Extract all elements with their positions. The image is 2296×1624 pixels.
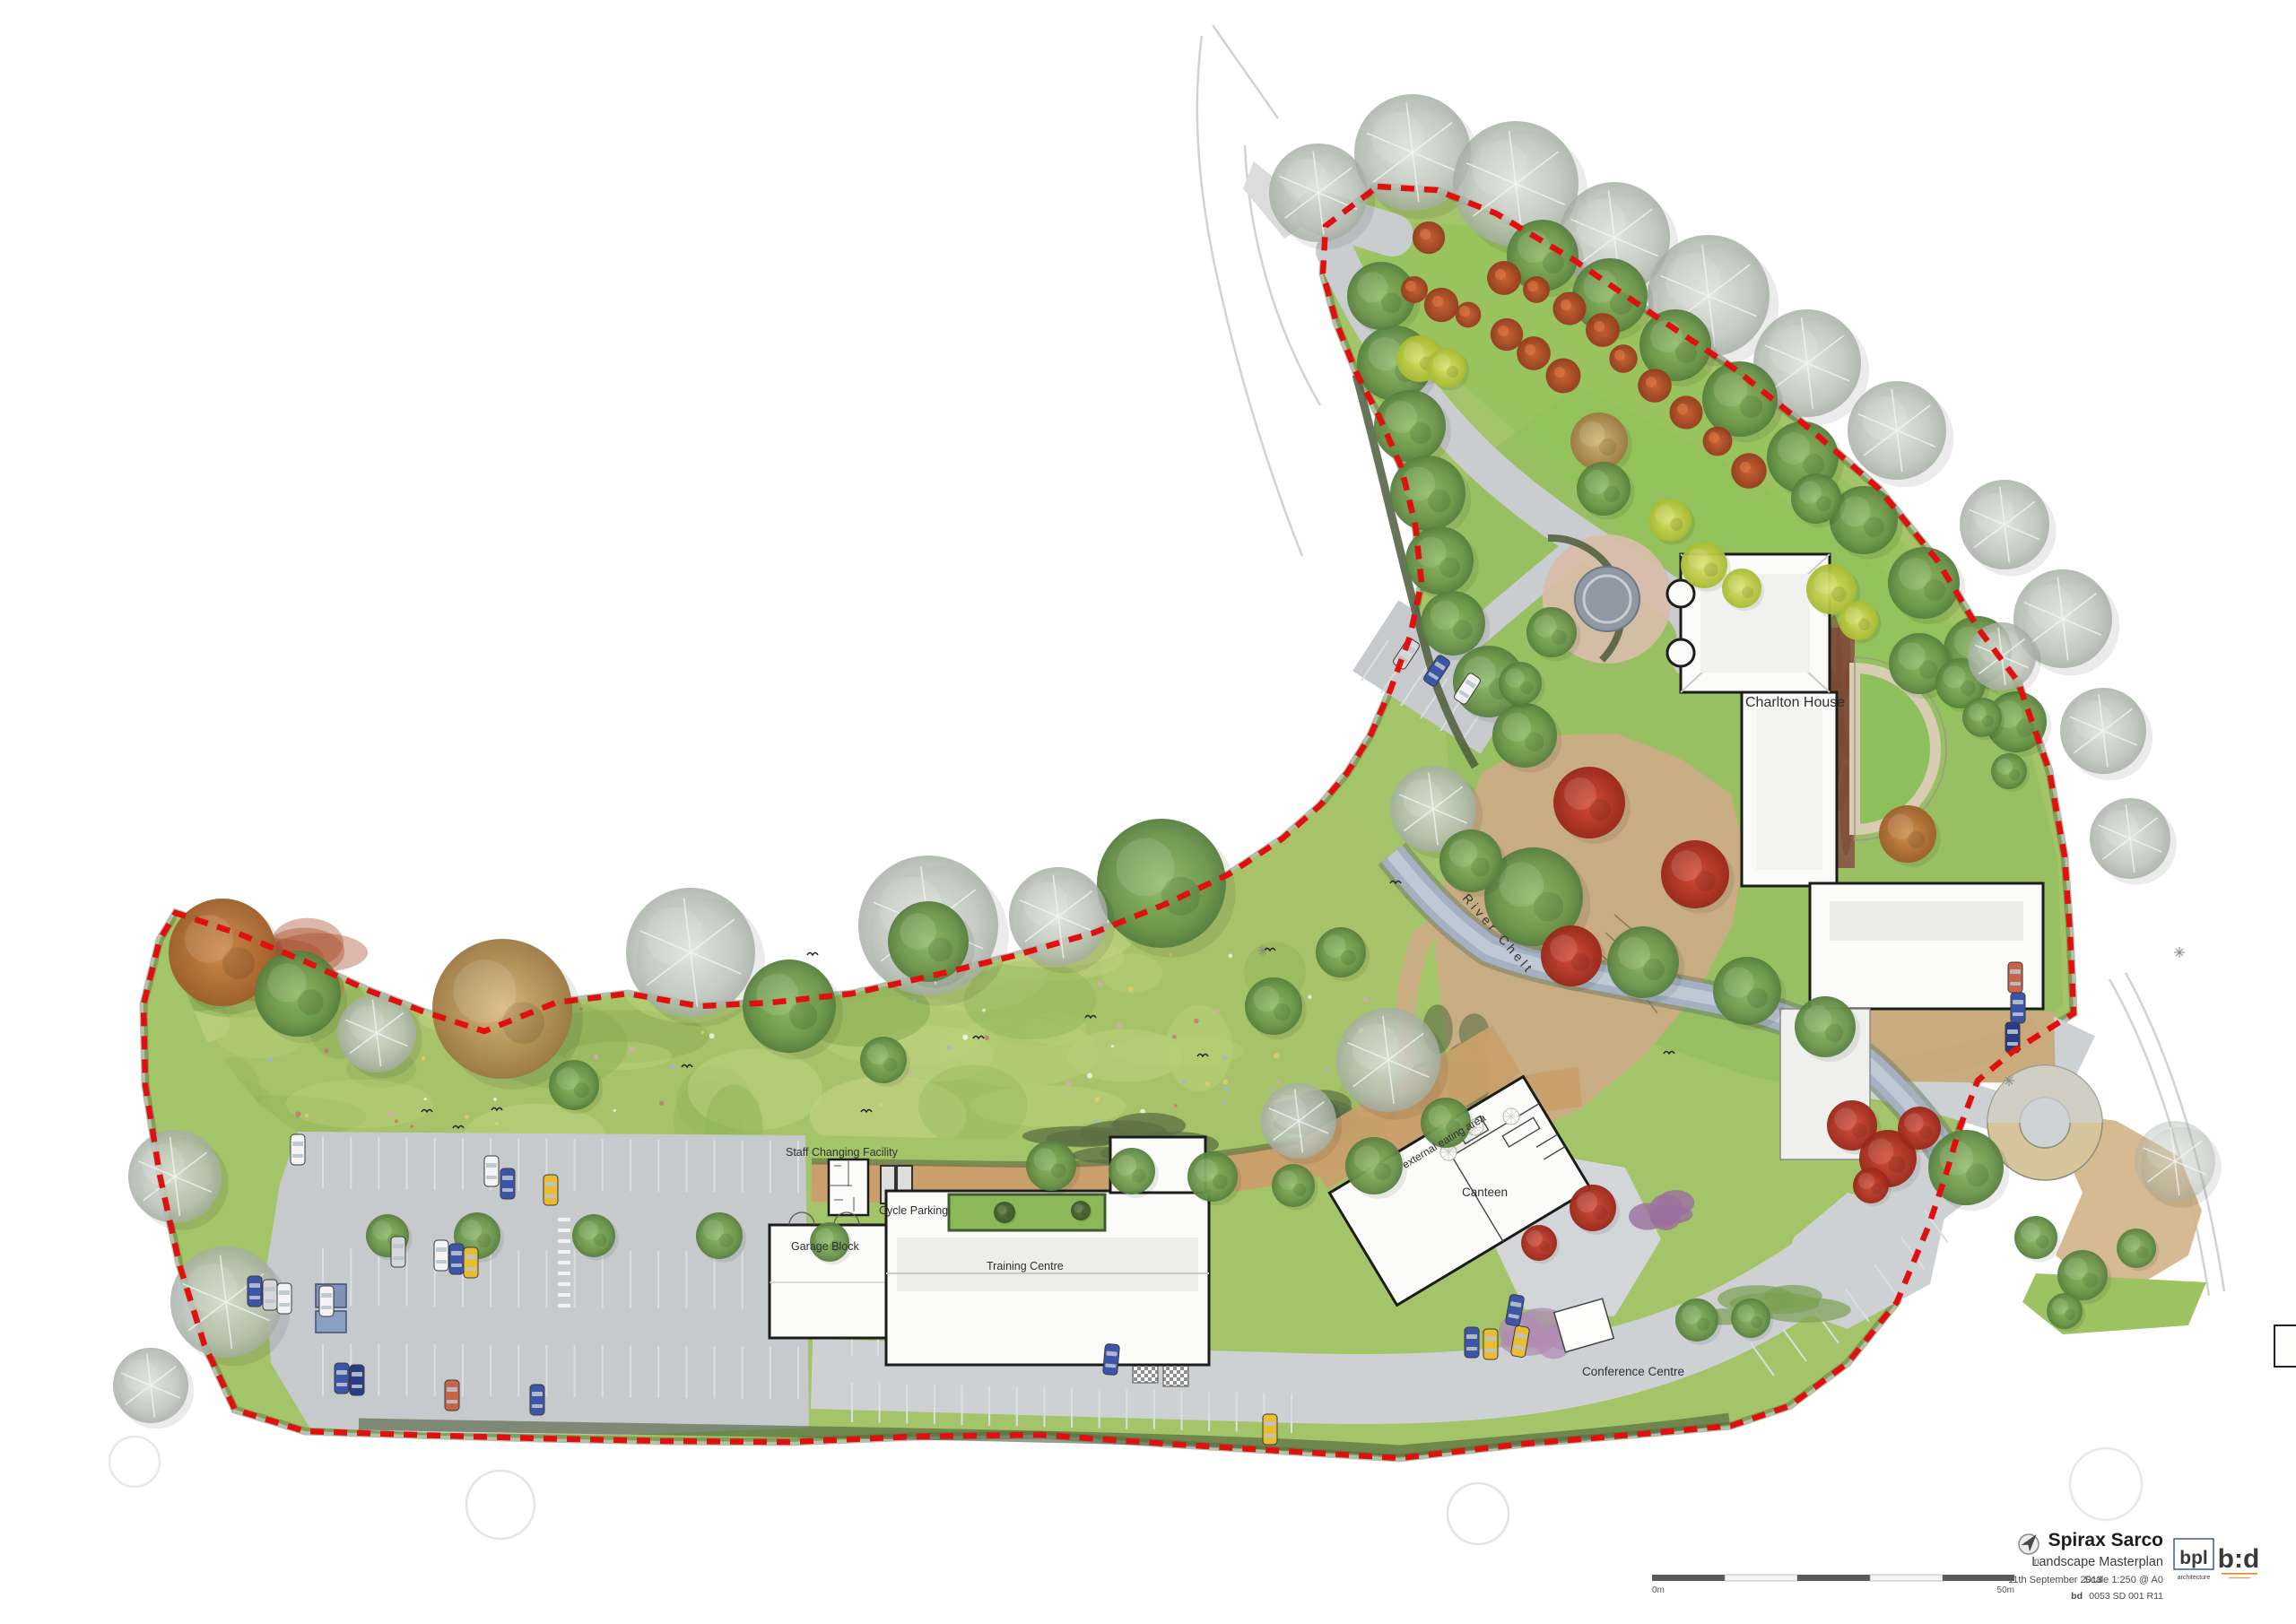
masterplan-sheet: Charlton House River Chelt Staff Changin… xyxy=(0,0,2296,1624)
car xyxy=(445,1380,459,1411)
shrub-icon xyxy=(1609,344,1638,373)
car xyxy=(484,1156,499,1186)
label-garage-block: Garage Block xyxy=(791,1240,859,1253)
umbrella-icon xyxy=(1503,1108,1519,1125)
existing-tree-icon xyxy=(2090,798,2177,885)
car xyxy=(1483,1329,1498,1359)
label-training-centre: Training Centre xyxy=(987,1260,1064,1272)
car xyxy=(248,1276,262,1307)
car xyxy=(335,1363,349,1394)
scale-bar-zero: 0m xyxy=(1652,1585,1665,1595)
car xyxy=(277,1283,291,1314)
label-charlton-house: Charlton House xyxy=(1745,695,1845,710)
shrub-icon xyxy=(1546,359,1581,394)
drawing-number-prefix: bd xyxy=(2071,1591,2083,1602)
drawing-title: Landscape Masterplan xyxy=(2031,1555,2163,1569)
bd-logo-rule xyxy=(2222,1573,2257,1575)
existing-tree-icon xyxy=(113,1348,194,1429)
shrub-icon xyxy=(1669,395,1702,429)
bpl-logo: bpl architecture xyxy=(2174,1539,2213,1581)
masterplan-drawing: Charlton House River Chelt Staff Changin… xyxy=(0,0,2296,1624)
label-cycle-parking: Cycle Parking xyxy=(879,1204,948,1217)
car xyxy=(391,1237,405,1267)
bd-logo-rule xyxy=(2229,1577,2250,1578)
drawing-number: 0053 SD 001 R11 xyxy=(2089,1591,2163,1602)
car xyxy=(449,1244,464,1274)
staff-changing-building xyxy=(829,1159,868,1215)
label-staff-changing: Staff Changing Facility xyxy=(786,1146,899,1159)
client-name: Spirax Sarco xyxy=(2048,1530,2163,1550)
shrub-icon xyxy=(1638,369,1672,403)
label-canteen: Canteen xyxy=(1462,1185,1508,1199)
car xyxy=(500,1168,515,1199)
car xyxy=(434,1240,448,1271)
car xyxy=(2011,993,2025,1023)
edge-structure xyxy=(2274,1325,2296,1367)
shrub-icon xyxy=(1552,291,1586,325)
car xyxy=(1103,1343,1120,1375)
shrub-icon xyxy=(1586,313,1620,347)
shrub-icon xyxy=(1456,302,1482,328)
shrub-icon xyxy=(1491,318,1523,351)
label-conference-centre: Conference Centre xyxy=(1582,1365,1684,1378)
car xyxy=(544,1175,558,1205)
shrub-icon xyxy=(1424,288,1458,322)
north-arrow xyxy=(2015,1528,2045,1558)
shrub-icon xyxy=(1731,453,1766,488)
car xyxy=(350,1365,364,1395)
scale-bar: 0m 50m xyxy=(1652,1575,2014,1595)
car xyxy=(319,1286,334,1316)
shrub-icon xyxy=(1523,276,1550,303)
title-block: n Spirax Sarco Landscape Masterplan 11th… xyxy=(1652,1528,2259,1602)
car xyxy=(1465,1327,1479,1358)
drawing-scale: Scale 1:250 @ A0 xyxy=(2084,1575,2163,1585)
car xyxy=(291,1134,305,1165)
bd-logo: b:d xyxy=(2218,1544,2260,1578)
bpl-logo-subtext: architecture xyxy=(2178,1575,2211,1581)
scale-bar-end: 50m xyxy=(1997,1585,2014,1595)
bd-logo-text: b:d xyxy=(2218,1544,2260,1574)
shrub-icon xyxy=(1703,427,1733,456)
car xyxy=(530,1385,544,1415)
shrub-icon xyxy=(1517,336,1551,370)
shrub-icon xyxy=(1413,221,1445,254)
shrub-icon xyxy=(1487,261,1521,295)
car xyxy=(464,1247,478,1278)
car xyxy=(1263,1414,1277,1445)
tree-icon xyxy=(2014,1216,2061,1263)
existing-tree-icon xyxy=(2060,688,2152,780)
car xyxy=(263,1280,277,1310)
car xyxy=(2008,962,2022,993)
shrub-icon xyxy=(1401,276,1428,303)
bpl-logo-text: bpl xyxy=(2179,1548,2208,1568)
existing-tree-icon xyxy=(1960,480,2057,577)
